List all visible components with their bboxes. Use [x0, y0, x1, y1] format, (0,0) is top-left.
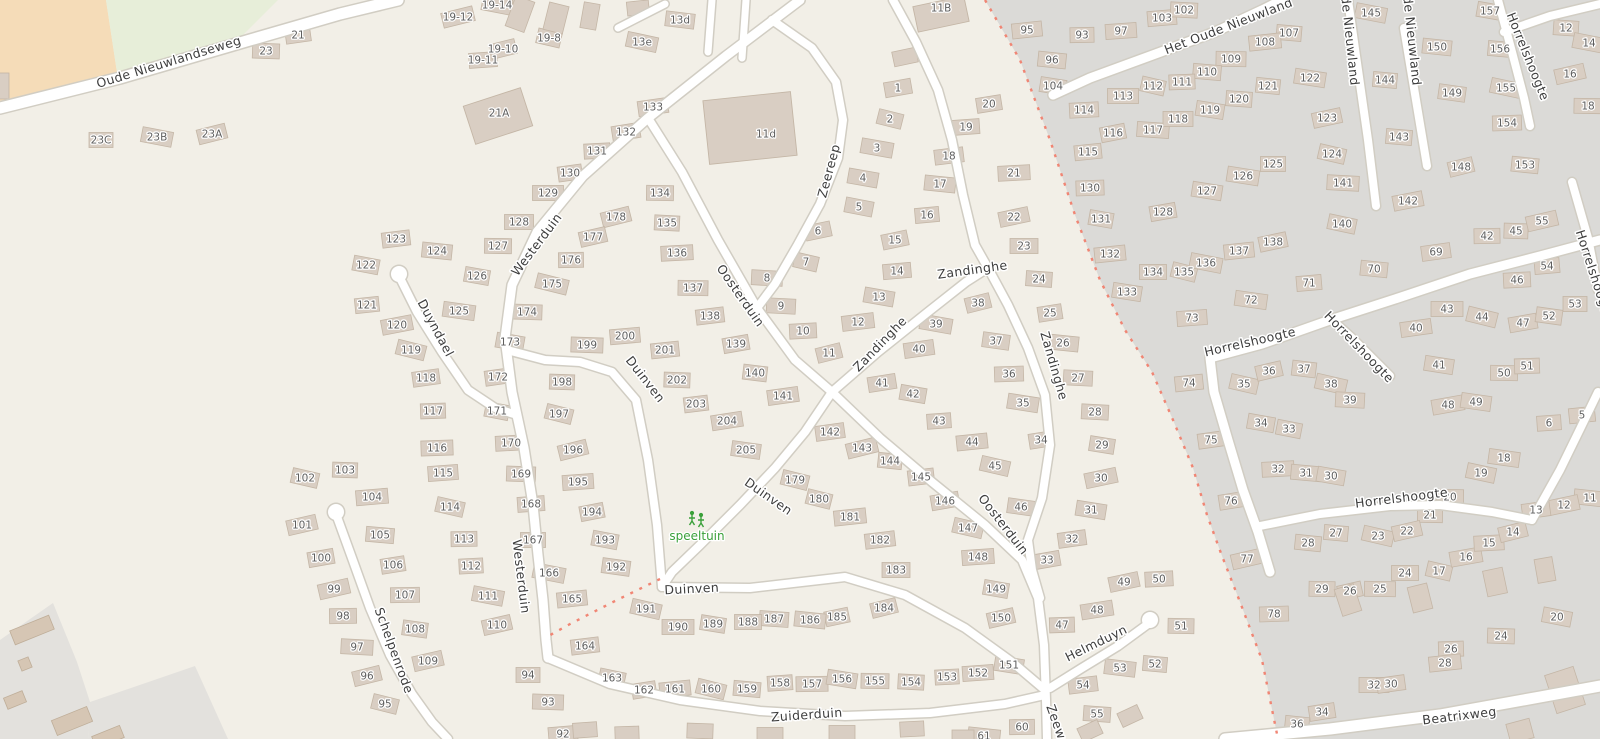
house-number-label: 35	[1016, 398, 1029, 410]
house-number-label: 42	[1480, 231, 1493, 243]
house-number-label: 141	[1333, 178, 1353, 190]
road-driveway	[742, 0, 746, 58]
building	[0, 73, 9, 99]
house-number-label: 97	[1114, 26, 1127, 38]
house-number-label: 111	[1172, 77, 1192, 89]
house-number-label: 23	[1017, 241, 1030, 253]
cul-de-sac-duyndael	[391, 266, 407, 282]
house-number-label: 108	[405, 624, 425, 636]
street-name-label: Schelpenrode	[372, 605, 417, 695]
house-number-label: 7	[803, 257, 810, 269]
house-number-label: 175	[542, 279, 562, 291]
house-number-label: 23B	[147, 132, 168, 144]
house-number-label: 149	[986, 584, 1006, 596]
house-number-label: 28	[1088, 407, 1101, 419]
house-number-label: 36	[1262, 366, 1276, 378]
house-number-label: 151	[999, 660, 1019, 672]
house-number-label: 129	[538, 188, 558, 200]
house-number-label: 21	[1423, 510, 1436, 522]
house-number-label: 24	[1398, 568, 1412, 580]
house-number-label: 100	[311, 553, 331, 565]
house-number-label: 127	[488, 241, 508, 253]
house-number-label: 17	[933, 179, 946, 191]
building	[829, 726, 855, 739]
house-number-label: 11	[1583, 493, 1596, 505]
house-number-label: 107	[1279, 28, 1299, 40]
house-number-label: 137	[1229, 246, 1249, 258]
map-canvas[interactable]: 23C23B23A232119-1219-1419-1119-1019-813e…	[0, 0, 1600, 739]
house-number-label: 136	[667, 248, 687, 260]
house-number-label: 95	[1020, 25, 1033, 37]
house-number-label: 33	[1040, 555, 1053, 567]
house-number-label: 29	[1315, 584, 1328, 596]
building	[757, 728, 783, 739]
house-number-label: 162	[634, 685, 654, 697]
house-number-label: 124	[427, 246, 447, 258]
house-number-label: 30	[1384, 679, 1397, 691]
cul-de-sac-helmduyn	[1142, 612, 1158, 628]
house-number-label: 147	[958, 523, 978, 535]
house-number-label: 33	[1282, 424, 1295, 436]
house-number-label: 24	[1494, 631, 1508, 643]
house-number-label: 200	[615, 331, 635, 343]
house-number-label: 31	[1299, 468, 1312, 480]
house-number-label: 177	[583, 232, 603, 244]
house-number-label: 28	[1301, 538, 1314, 550]
house-number-label: 128	[509, 217, 529, 229]
house-number-label: 136	[1196, 258, 1216, 270]
house-number-label: 122	[1300, 73, 1320, 85]
house-number-label: 163	[602, 673, 622, 685]
house-number-label: 19-8	[537, 33, 561, 45]
house-number-label: 20	[982, 99, 995, 111]
house-number-label: 123	[1317, 113, 1337, 125]
house-number-label: 19-10	[488, 44, 519, 56]
house-number-label: 105	[370, 530, 390, 542]
house-number-label: 182	[870, 535, 890, 547]
house-number-label: 19	[1474, 468, 1487, 480]
house-number-label: 184	[874, 603, 894, 615]
house-number-label: 131	[587, 146, 607, 158]
house-number-label: 130	[560, 168, 580, 180]
house-number-label: 188	[738, 617, 758, 629]
house-number-label: 6	[815, 226, 822, 238]
house-number-label: 133	[643, 102, 663, 114]
farmyard	[88, 666, 228, 739]
house-number-label: 18	[1581, 101, 1594, 113]
house-number-label: 54	[1076, 680, 1090, 692]
house-number-label: 2	[887, 114, 894, 126]
house-number-label: 31	[1084, 505, 1097, 517]
house-number-label: 39	[1343, 395, 1356, 407]
house-number-label: 126	[1233, 171, 1253, 183]
house-number-label: 130	[1080, 183, 1100, 195]
house-number-label: 155	[865, 676, 885, 688]
house-number-label: 14	[890, 266, 904, 278]
house-number-label: 47	[1055, 620, 1068, 632]
house-number-label: 53	[1568, 299, 1581, 311]
house-number-label: 125	[449, 306, 469, 318]
house-number-label: 144	[880, 456, 900, 468]
house-number-label: 165	[562, 594, 582, 606]
house-number-label: 49	[1117, 577, 1130, 589]
house-number-label: 185	[827, 612, 847, 624]
house-number-label: 205	[736, 445, 756, 457]
house-number-label: 25	[1043, 308, 1056, 320]
house-number-label: 140	[1332, 219, 1352, 231]
house-number-label: 135	[657, 218, 677, 230]
house-number-label: 23A	[202, 129, 223, 141]
house-number-label: 34	[1254, 418, 1268, 430]
house-number-label: 14	[1582, 38, 1596, 50]
house-number-label: 3	[874, 143, 881, 155]
house-number-label: 170	[501, 438, 521, 450]
house-number-label: 78	[1267, 609, 1280, 621]
house-number-label: 191	[636, 604, 656, 616]
house-number-label: 74	[1182, 378, 1196, 390]
house-number-label: 118	[416, 373, 436, 385]
house-number-label: 168	[521, 499, 541, 511]
house-number-label: 10	[796, 326, 809, 338]
house-number-label: 102	[295, 473, 315, 485]
house-number-label: 71	[1302, 278, 1315, 290]
house-number-label: 1	[895, 83, 902, 95]
house-number-label: 176	[561, 255, 581, 267]
house-number-label: 114	[1074, 105, 1094, 117]
house-number-label: 155	[1496, 83, 1516, 95]
house-number-label: 26	[1056, 338, 1070, 350]
house-number-label: 73	[1185, 313, 1198, 325]
house-number-label: 112	[1143, 81, 1163, 93]
house-number-label: 50	[1152, 574, 1165, 586]
house-number-label: 141	[773, 391, 793, 403]
house-number-label: 15	[1482, 538, 1495, 550]
street-name-label: Westerduin	[509, 539, 533, 615]
house-number-label: 44	[1475, 312, 1489, 324]
house-number-label: 76	[1224, 496, 1238, 508]
house-number-label: 41	[1432, 360, 1445, 372]
house-number-label: 32	[1065, 534, 1078, 546]
house-number-label: 44	[965, 437, 979, 449]
house-number-label: 115	[1078, 147, 1098, 159]
house-number-label: 13e	[632, 37, 652, 49]
house-number-label: 121	[357, 300, 377, 312]
house-number-label: 190	[668, 622, 688, 634]
house-number-label: 148	[968, 552, 988, 564]
house-number-label: 6	[1546, 418, 1553, 430]
house-number-label: 43	[932, 416, 945, 428]
house-number-label: 96	[360, 671, 374, 683]
house-number-label: 121	[1258, 81, 1278, 93]
house-number-label: 22	[1007, 212, 1020, 224]
house-number-label: 50	[1497, 368, 1510, 380]
house-number-label: 198	[552, 377, 572, 389]
house-number-label: 144	[1375, 75, 1395, 87]
house-number-label: 199	[577, 340, 597, 352]
house-number-label: 37	[989, 336, 1002, 348]
building	[615, 726, 640, 739]
house-number-label: 126	[467, 271, 487, 283]
house-number-label: 110	[1197, 67, 1217, 79]
house-number-label: 201	[655, 345, 675, 357]
house-number-label: 108	[1255, 37, 1275, 49]
house-number-label: 109	[418, 656, 438, 668]
house-number-label: 21	[291, 30, 304, 42]
house-number-label: 180	[809, 494, 829, 506]
house-number-label: 26	[1343, 586, 1357, 598]
house-number-label: 203	[686, 399, 706, 411]
house-number-label: 34	[1034, 435, 1048, 447]
house-number-label: 29	[1095, 440, 1108, 452]
house-number-label: 145	[911, 472, 931, 484]
house-number-label: 26	[1444, 644, 1458, 656]
house-number-label: 116	[427, 443, 447, 455]
house-number-label: 132	[616, 127, 636, 139]
house-number-label: 23	[259, 46, 272, 58]
house-number-label: 135	[1174, 267, 1194, 279]
house-number-label: 48	[1441, 400, 1454, 412]
house-number-label: 51	[1174, 621, 1187, 633]
house-number-label: 11d	[756, 129, 776, 141]
house-number-label: 61	[977, 731, 990, 739]
house-number-label: 154	[901, 677, 921, 689]
house-number-label: 119	[1200, 105, 1220, 117]
house-number-label: 60	[1015, 722, 1028, 734]
house-number-label: 51	[1520, 361, 1533, 373]
house-number-label: 169	[511, 469, 531, 481]
house-number-label: 36	[1290, 719, 1304, 731]
house-number-label: 115	[433, 468, 453, 480]
house-number-label: 106	[383, 560, 403, 572]
house-number-label: 16	[920, 210, 934, 222]
house-number-label: 96	[1045, 55, 1059, 67]
house-number-label: 46	[1014, 502, 1028, 514]
house-number-label: 12	[1557, 500, 1570, 512]
house-number-label: 19-12	[443, 12, 474, 24]
house-number-label: 150	[991, 613, 1011, 625]
house-number-label: 111	[478, 591, 498, 603]
house-number-label: 12	[851, 317, 864, 329]
house-number-label: 9	[778, 301, 785, 313]
house-number-label: 103	[335, 465, 355, 477]
house-number-label: 187	[764, 614, 784, 626]
house-number-label: 157	[1480, 6, 1500, 18]
house-number-label: 120	[387, 320, 407, 332]
house-number-label: 16	[1563, 69, 1577, 81]
house-number-label: 156	[832, 674, 852, 686]
house-number-label: 70	[1367, 264, 1380, 276]
house-number-label: 19-14	[482, 0, 513, 12]
house-number-label: 75	[1204, 435, 1217, 447]
house-number-label: 5	[1579, 410, 1586, 422]
building-11d	[703, 92, 797, 165]
house-number-label: 53	[1113, 663, 1126, 675]
house-number-label: 113	[1113, 91, 1133, 103]
house-number-label: 172	[488, 372, 508, 384]
house-number-label: 109	[1221, 54, 1241, 66]
house-number-label: 196	[563, 445, 583, 457]
house-number-label: 18	[942, 151, 955, 163]
house-number-label: 178	[606, 212, 626, 224]
house-number-label: 143	[852, 443, 872, 455]
house-number-label: 95	[378, 699, 391, 711]
house-number-label: 189	[703, 619, 723, 631]
building	[573, 722, 598, 739]
house-number-label: 120	[1229, 94, 1249, 106]
house-number-label: 32	[1271, 464, 1284, 476]
house-number-label: 28	[1438, 658, 1451, 670]
house-number-label: 117	[1143, 125, 1163, 137]
house-number-label: 34	[1315, 707, 1329, 719]
house-number-label: 41	[875, 378, 888, 390]
house-number-label: 23C	[91, 135, 112, 147]
house-number-label: 110	[487, 620, 507, 632]
house-number-label: 119	[401, 345, 421, 357]
house-number-label: 93	[541, 697, 554, 709]
house-number-label: 145	[1361, 8, 1381, 20]
house-number-label: 102	[1174, 5, 1194, 17]
map-tile-layer: 23C23B23A232119-1219-1419-1119-1019-813e…	[0, 0, 1600, 739]
house-number-label: 77	[1240, 554, 1253, 566]
house-number-label: 5	[856, 202, 863, 214]
house-number-label: 38	[1324, 379, 1337, 391]
house-number-label: 181	[840, 512, 860, 524]
house-number-label: 94	[521, 670, 535, 682]
house-number-label: 153	[937, 672, 957, 684]
building	[687, 723, 714, 739]
house-number-label: 14	[1506, 527, 1520, 539]
house-number-label: 154	[1497, 118, 1517, 130]
house-number-label: 32	[1367, 680, 1380, 692]
house-number-label: 179	[785, 475, 805, 487]
building	[1534, 557, 1556, 584]
house-number-label: 116	[1103, 128, 1123, 140]
building	[900, 721, 925, 737]
house-number-label: 8	[764, 273, 771, 285]
house-number-label: 186	[800, 615, 820, 627]
playground-icon	[689, 511, 704, 527]
house-number-label: 171	[487, 406, 507, 418]
house-number-label: 42	[906, 389, 919, 401]
house-number-label: 17	[1432, 566, 1445, 578]
house-number-label: 16	[1459, 552, 1473, 564]
house-number-label: 36	[1002, 369, 1016, 381]
house-number-label: 128	[1153, 207, 1173, 219]
house-number-label: 123	[386, 234, 406, 246]
house-number-label: 22	[1400, 526, 1413, 538]
house-number-label: 24	[1032, 274, 1046, 286]
house-number-label: 39	[929, 319, 942, 331]
house-number-label: 11	[822, 348, 835, 360]
house-number-label: 19	[959, 122, 972, 134]
house-number-label: 142	[1398, 196, 1418, 208]
road-driveway	[708, 0, 712, 52]
house-number-label: 40	[912, 344, 925, 356]
house-number-label: 23	[1371, 531, 1384, 543]
house-number-label: 143	[1389, 132, 1409, 144]
building	[580, 2, 600, 30]
house-number-label: 159	[737, 684, 757, 696]
house-number-label: 149	[1442, 88, 1462, 100]
house-number-label: 98	[336, 611, 349, 623]
house-number-label: 192	[606, 562, 626, 574]
house-number-label: 38	[971, 298, 984, 310]
house-number-label: 52	[1542, 311, 1555, 323]
house-number-label: 101	[292, 520, 312, 532]
house-number-label: 18	[1497, 453, 1510, 465]
house-number-label: 99	[327, 584, 340, 596]
house-number-label: 30	[1094, 473, 1107, 485]
house-number-label: 146	[935, 496, 955, 508]
house-number-label: 27	[1071, 373, 1084, 385]
house-number-label: 112	[461, 561, 481, 573]
building	[543, 2, 569, 34]
house-number-label: 127	[1197, 186, 1217, 198]
house-number-label: 40	[1409, 323, 1422, 335]
house-number-label: 197	[549, 409, 569, 421]
house-number-label: 193	[595, 535, 615, 547]
house-number-label: 156	[1490, 44, 1510, 56]
house-number-label: 37	[1297, 364, 1310, 376]
house-number-label: 133	[1117, 287, 1137, 299]
house-number-label: 97	[350, 642, 363, 654]
house-number-label: 166	[539, 568, 559, 580]
house-number-label: 45	[988, 461, 1001, 473]
house-number-label: 150	[1427, 42, 1447, 54]
house-number-label: 142	[820, 427, 840, 439]
house-number-label: 174	[517, 307, 537, 319]
house-number-label: 19-11	[468, 55, 499, 67]
house-number-label: 113	[454, 534, 474, 546]
house-number-label: 69	[1429, 247, 1442, 259]
house-number-label: 72	[1244, 295, 1257, 307]
house-number-label: 47	[1516, 318, 1529, 330]
house-number-label: 103	[1152, 13, 1172, 25]
house-number-label: 104	[1043, 81, 1063, 93]
house-number-label: 49	[1469, 397, 1482, 409]
house-number-label: 20	[1550, 612, 1563, 624]
house-number-label: 118	[1168, 114, 1188, 126]
street-name-label: Duinven	[664, 580, 719, 598]
house-number-label: 138	[1263, 237, 1283, 249]
house-number-label: 138	[700, 311, 720, 323]
house-number-label: 104	[362, 492, 382, 504]
house-number-label: 132	[1100, 249, 1120, 261]
house-number-label: 160	[701, 684, 721, 696]
house-number-label: 107	[395, 590, 415, 602]
house-number-label: 204	[717, 416, 737, 428]
house-number-label: 25	[1373, 584, 1386, 596]
house-number-label: 134	[650, 188, 670, 200]
house-number-label: 164	[575, 641, 595, 653]
building	[1117, 705, 1143, 728]
house-number-label: 195	[568, 477, 588, 489]
house-number-label: 15	[888, 235, 901, 247]
house-number-label: 43	[1440, 304, 1453, 316]
house-number-label: 52	[1148, 659, 1161, 671]
house-number-label: 153	[1515, 160, 1535, 172]
house-number-label: 173	[500, 337, 520, 349]
house-number-label: 139	[726, 339, 746, 351]
house-number-label: 140	[745, 368, 765, 380]
house-number-label: 183	[886, 565, 906, 577]
house-number-label: 93	[1075, 30, 1088, 42]
house-number-label: 13d	[670, 15, 690, 27]
poi-label-speeltuin: speeltuin	[669, 529, 724, 543]
house-number-label: 45	[1509, 226, 1522, 238]
house-number-label: 35	[1237, 379, 1250, 391]
building	[952, 730, 974, 739]
